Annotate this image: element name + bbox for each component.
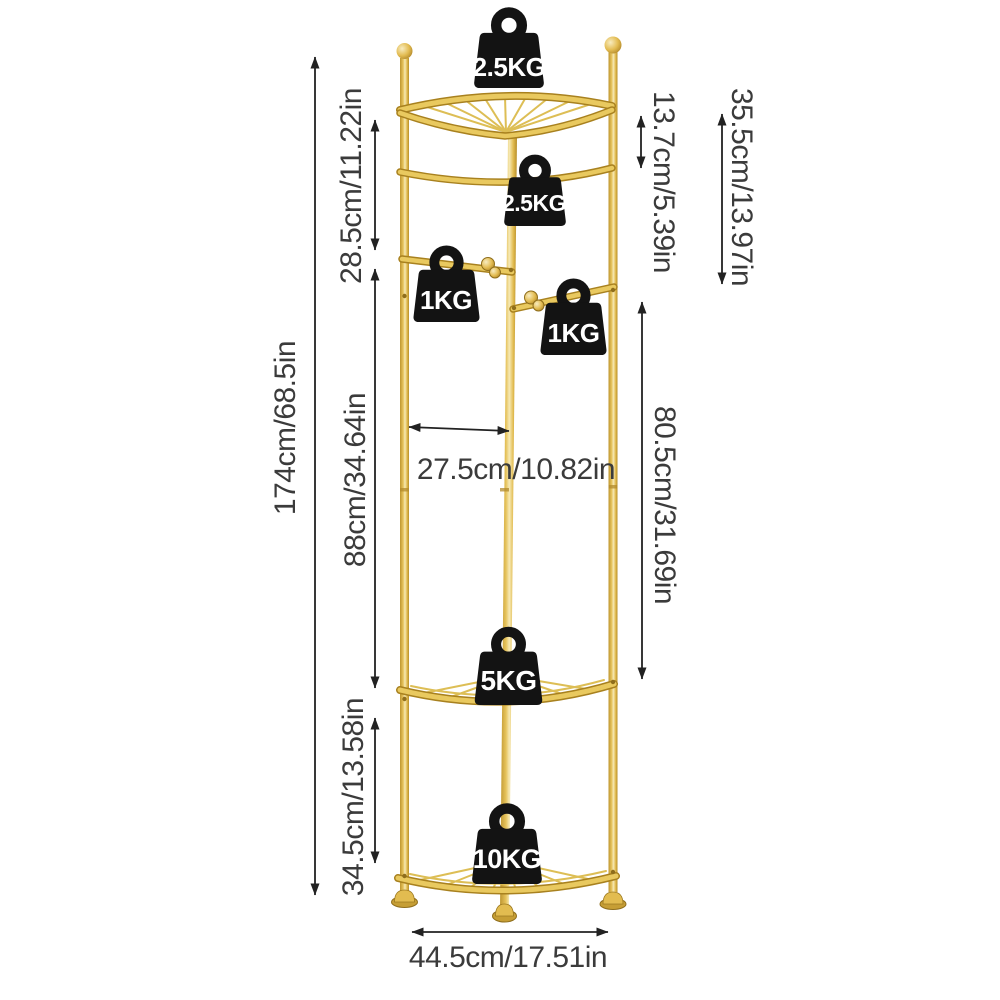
weight-label: 2.5KG (473, 52, 546, 82)
center-post (500, 136, 517, 910)
right-post-finial (605, 37, 622, 54)
dimension-label: 44.5cm/17.51in (409, 941, 607, 974)
center-post-joint (500, 488, 509, 492)
hook-knob (533, 300, 544, 311)
dimension-label: 13.7cm/5.39in (647, 91, 680, 273)
dimension-overall-height: 174cm/68.5in (269, 57, 315, 895)
dimension-label: 28.5cm/11.22in (335, 88, 368, 284)
dimension-top-section: 28.5cm/11.22in (335, 88, 375, 284)
dimension-shelf-to-hooks: 35.5cm/13.97in (722, 88, 758, 286)
dimension-arrow (409, 427, 509, 431)
dimension-label: 34.5cm/13.58in (337, 698, 370, 896)
dimension-label: 27.5cm/10.82in (417, 453, 615, 486)
dimension-label: 80.5cm/31.69in (648, 406, 681, 604)
dimension-bottom-section: 34.5cm/13.58in (337, 698, 375, 896)
hook-knob (490, 267, 501, 278)
hanging-rail (400, 168, 612, 182)
weight-label: 2.5KG (502, 190, 566, 216)
dimension-label: 88cm/34.64in (339, 393, 372, 567)
weight-label: 1KG (548, 318, 600, 348)
weight-label: 1KG (420, 285, 472, 315)
right-foot (600, 892, 626, 910)
left-foot (392, 890, 418, 908)
left-post-finial (397, 43, 413, 59)
dimension-base-width: 44.5cm/17.51in (409, 932, 608, 974)
weight-label: 10KG (473, 844, 542, 874)
weight-label: 5KG (480, 665, 536, 696)
diagram-stage: 2.5KG 2.5KG 1KG 1KG 5KG 10KG (0, 0, 1000, 1000)
diagram-canvas: 2.5KG 2.5KG 1KG 1KG 5KG 10KG (0, 0, 1000, 1000)
left-post-joint (400, 488, 409, 492)
dimension-hooks-to-shelf: 80.5cm/31.69in (642, 302, 681, 679)
dimension-label: 35.5cm/13.97in (725, 88, 758, 286)
center-foot (493, 904, 517, 922)
top-shelf (400, 96, 612, 136)
dimension-shelf-to-rail: 13.7cm/5.39in (641, 91, 680, 273)
dimension-label: 174cm/68.5in (269, 341, 302, 515)
dimension-middle-section: 88cm/34.64in (339, 269, 375, 688)
